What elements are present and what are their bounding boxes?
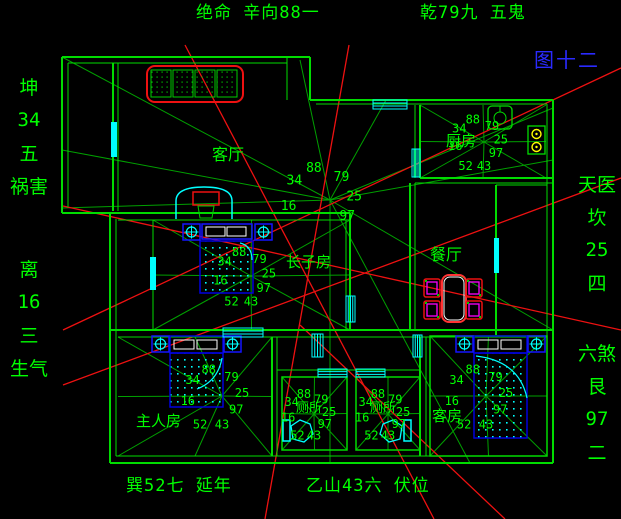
star-number: 88 — [466, 113, 480, 127]
star-number: 25 — [235, 386, 249, 400]
figure-number-label: 图十二 — [534, 44, 600, 73]
dining-chair — [466, 301, 482, 319]
ordinal-label: 三 — [19, 318, 38, 351]
compass-icon — [255, 224, 272, 240]
star-number-label: 97 — [586, 402, 609, 435]
trigram-label: 离 — [19, 252, 38, 285]
star-number: 88 — [201, 362, 215, 376]
star-number: 16 — [281, 411, 295, 425]
top-left-direction-label: 绝命 辛向88一 — [196, 5, 320, 22]
star-number-label: 34 — [18, 103, 41, 136]
star-number: 34 — [185, 373, 199, 387]
star-number: 25 — [499, 386, 513, 400]
red-direction-lines — [63, 45, 621, 519]
star-number: 79 — [224, 370, 238, 384]
door-bar-icon — [111, 122, 117, 157]
trigram-label: 坎 — [587, 200, 606, 233]
star-number: 79 — [252, 252, 266, 266]
bottom-left-direction-label: 巽52七 延年 — [126, 478, 232, 495]
star-number-label: 25 — [586, 233, 609, 266]
star-number: 16 — [281, 199, 297, 214]
door-bar-icon — [150, 257, 156, 290]
star-number: 34 — [449, 373, 463, 387]
ordinal-label: 五 — [19, 136, 38, 169]
star-number: 16 — [181, 394, 195, 408]
star-name-label: 生气 — [10, 351, 48, 384]
compass-icon — [152, 336, 169, 352]
star-number: 97 — [257, 281, 271, 295]
star-number: 16 — [445, 394, 459, 408]
dining-chair — [466, 279, 482, 297]
left-lower-direction-column: 离 16 三 生气 — [4, 252, 54, 384]
left-upper-direction-column: 坤 34 五 祸害 — [4, 70, 54, 202]
dining-set — [424, 275, 482, 322]
stove — [528, 126, 545, 154]
room-label-bathroom-2: 厕所 — [370, 401, 396, 416]
floor-plan-canvas[interactable]: 8879259743521634887925974352163488792597… — [0, 0, 621, 519]
star-number-label: 16 — [18, 285, 41, 318]
star-number: 97 — [229, 402, 243, 416]
star-number: 43 — [381, 429, 395, 443]
star-number: 79 — [488, 370, 502, 384]
right-upper-direction-column: 天医 坎 25 四 — [572, 167, 621, 299]
room-label-kitchen: 厨房 — [446, 132, 476, 150]
star-name-label: 六煞 — [578, 336, 616, 369]
star-number: 43 — [477, 159, 491, 173]
star-name-label: 祸害 — [10, 169, 48, 202]
star-number: 52 — [290, 429, 304, 443]
compass-icon — [456, 336, 473, 352]
room-label-eldest-son-room: 长子房 — [286, 253, 331, 271]
trigram-label: 坤 — [19, 70, 38, 103]
star-number: 88 — [465, 362, 479, 376]
star-number: 25 — [494, 133, 508, 147]
star-number: 25 — [346, 190, 362, 205]
star-number: 97 — [339, 209, 355, 224]
star-number: 43 — [307, 429, 321, 443]
room-label-master-bedroom: 主人房 — [136, 412, 181, 430]
star-number: 25 — [262, 266, 276, 280]
room-label-bathroom-1: 厕所 — [296, 401, 322, 416]
compass-icon — [224, 336, 241, 352]
star-number: 16 — [213, 273, 227, 287]
sofa — [147, 66, 243, 102]
right-lower-direction-column: 六煞 艮 97 二 — [572, 336, 621, 468]
star-number: 34 — [217, 255, 231, 269]
star-number: 88 — [306, 161, 322, 176]
tv-cabinet — [202, 224, 252, 239]
compass-icon — [528, 336, 545, 352]
ordinal-label: 四 — [587, 266, 606, 299]
dining-chair — [424, 301, 440, 319]
star-number: 79 — [485, 119, 499, 133]
top-right-direction-label: 乾79九 五鬼 — [420, 5, 526, 22]
room-label-dining-room: 餐厅 — [430, 245, 462, 264]
star-number: 43 — [479, 418, 493, 432]
fengshui-floorplan-screen: 8879259743521634887925974352163488792597… — [0, 0, 621, 519]
ordinal-label: 二 — [587, 435, 606, 468]
bottom-center-direction-label: 乙山43六 伏位 — [306, 478, 430, 495]
trigram-label: 艮 — [587, 369, 606, 402]
star-number: 52 — [364, 429, 378, 443]
star-number: 34 — [287, 173, 303, 188]
room-label-living-room: 客厅 — [212, 145, 244, 164]
star-number: 52 — [224, 295, 238, 309]
star-number: 43 — [215, 418, 229, 432]
star-number: 79 — [334, 170, 350, 185]
star-name-label: 天医 — [578, 167, 616, 200]
star-number: 97 — [493, 402, 507, 416]
star-number: 52 — [458, 159, 472, 173]
star-number: 88 — [232, 245, 246, 259]
star-number: 16 — [355, 411, 369, 425]
door-bar-icon — [494, 238, 499, 273]
compass-icon — [183, 224, 200, 240]
door-icon — [346, 296, 355, 322]
room-label-guest-room: 客房 — [432, 407, 462, 425]
star-number: 43 — [244, 295, 258, 309]
star-number: 52 — [193, 418, 207, 432]
